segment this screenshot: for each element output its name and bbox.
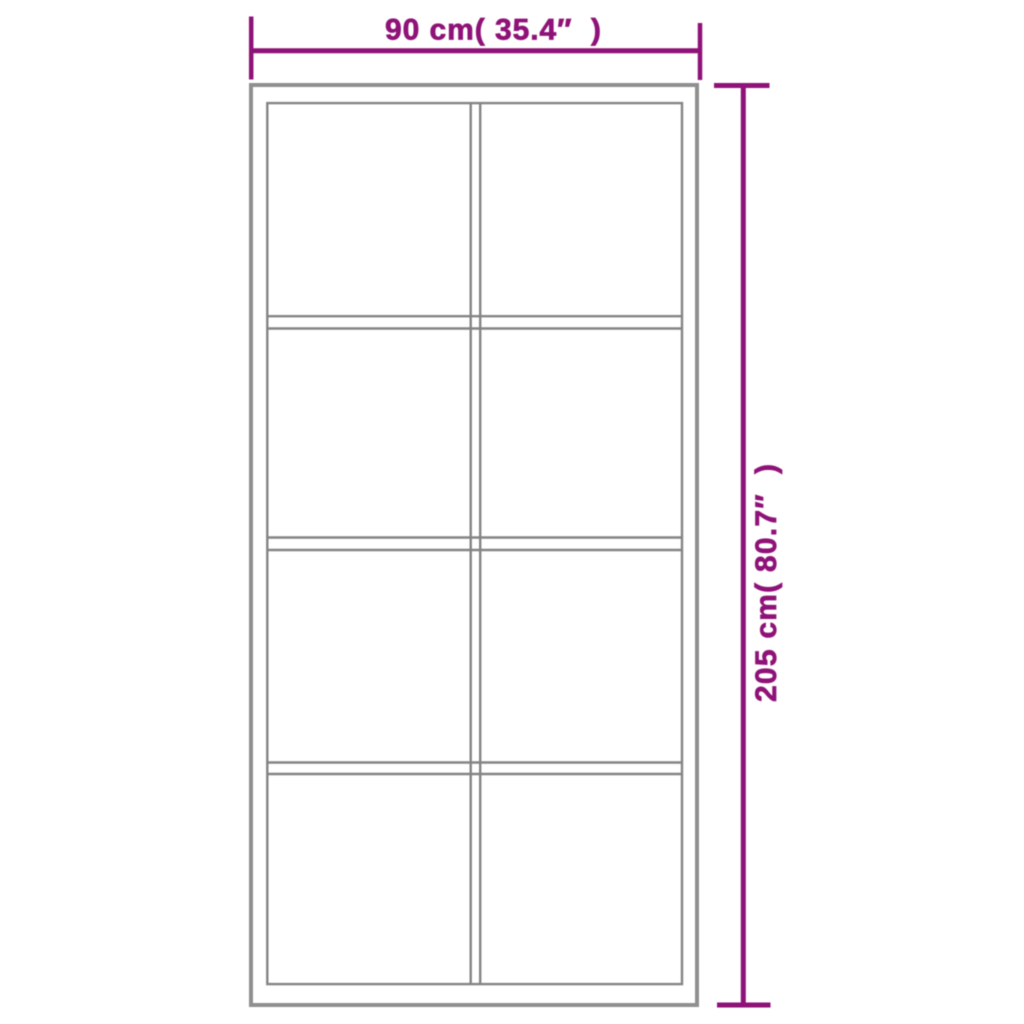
svg-text:205 cm( 80.7″ ): 205 cm( 80.7″ ) [750, 464, 783, 702]
svg-text:90 cm( 35.4″ ): 90 cm( 35.4″ ) [385, 14, 601, 47]
